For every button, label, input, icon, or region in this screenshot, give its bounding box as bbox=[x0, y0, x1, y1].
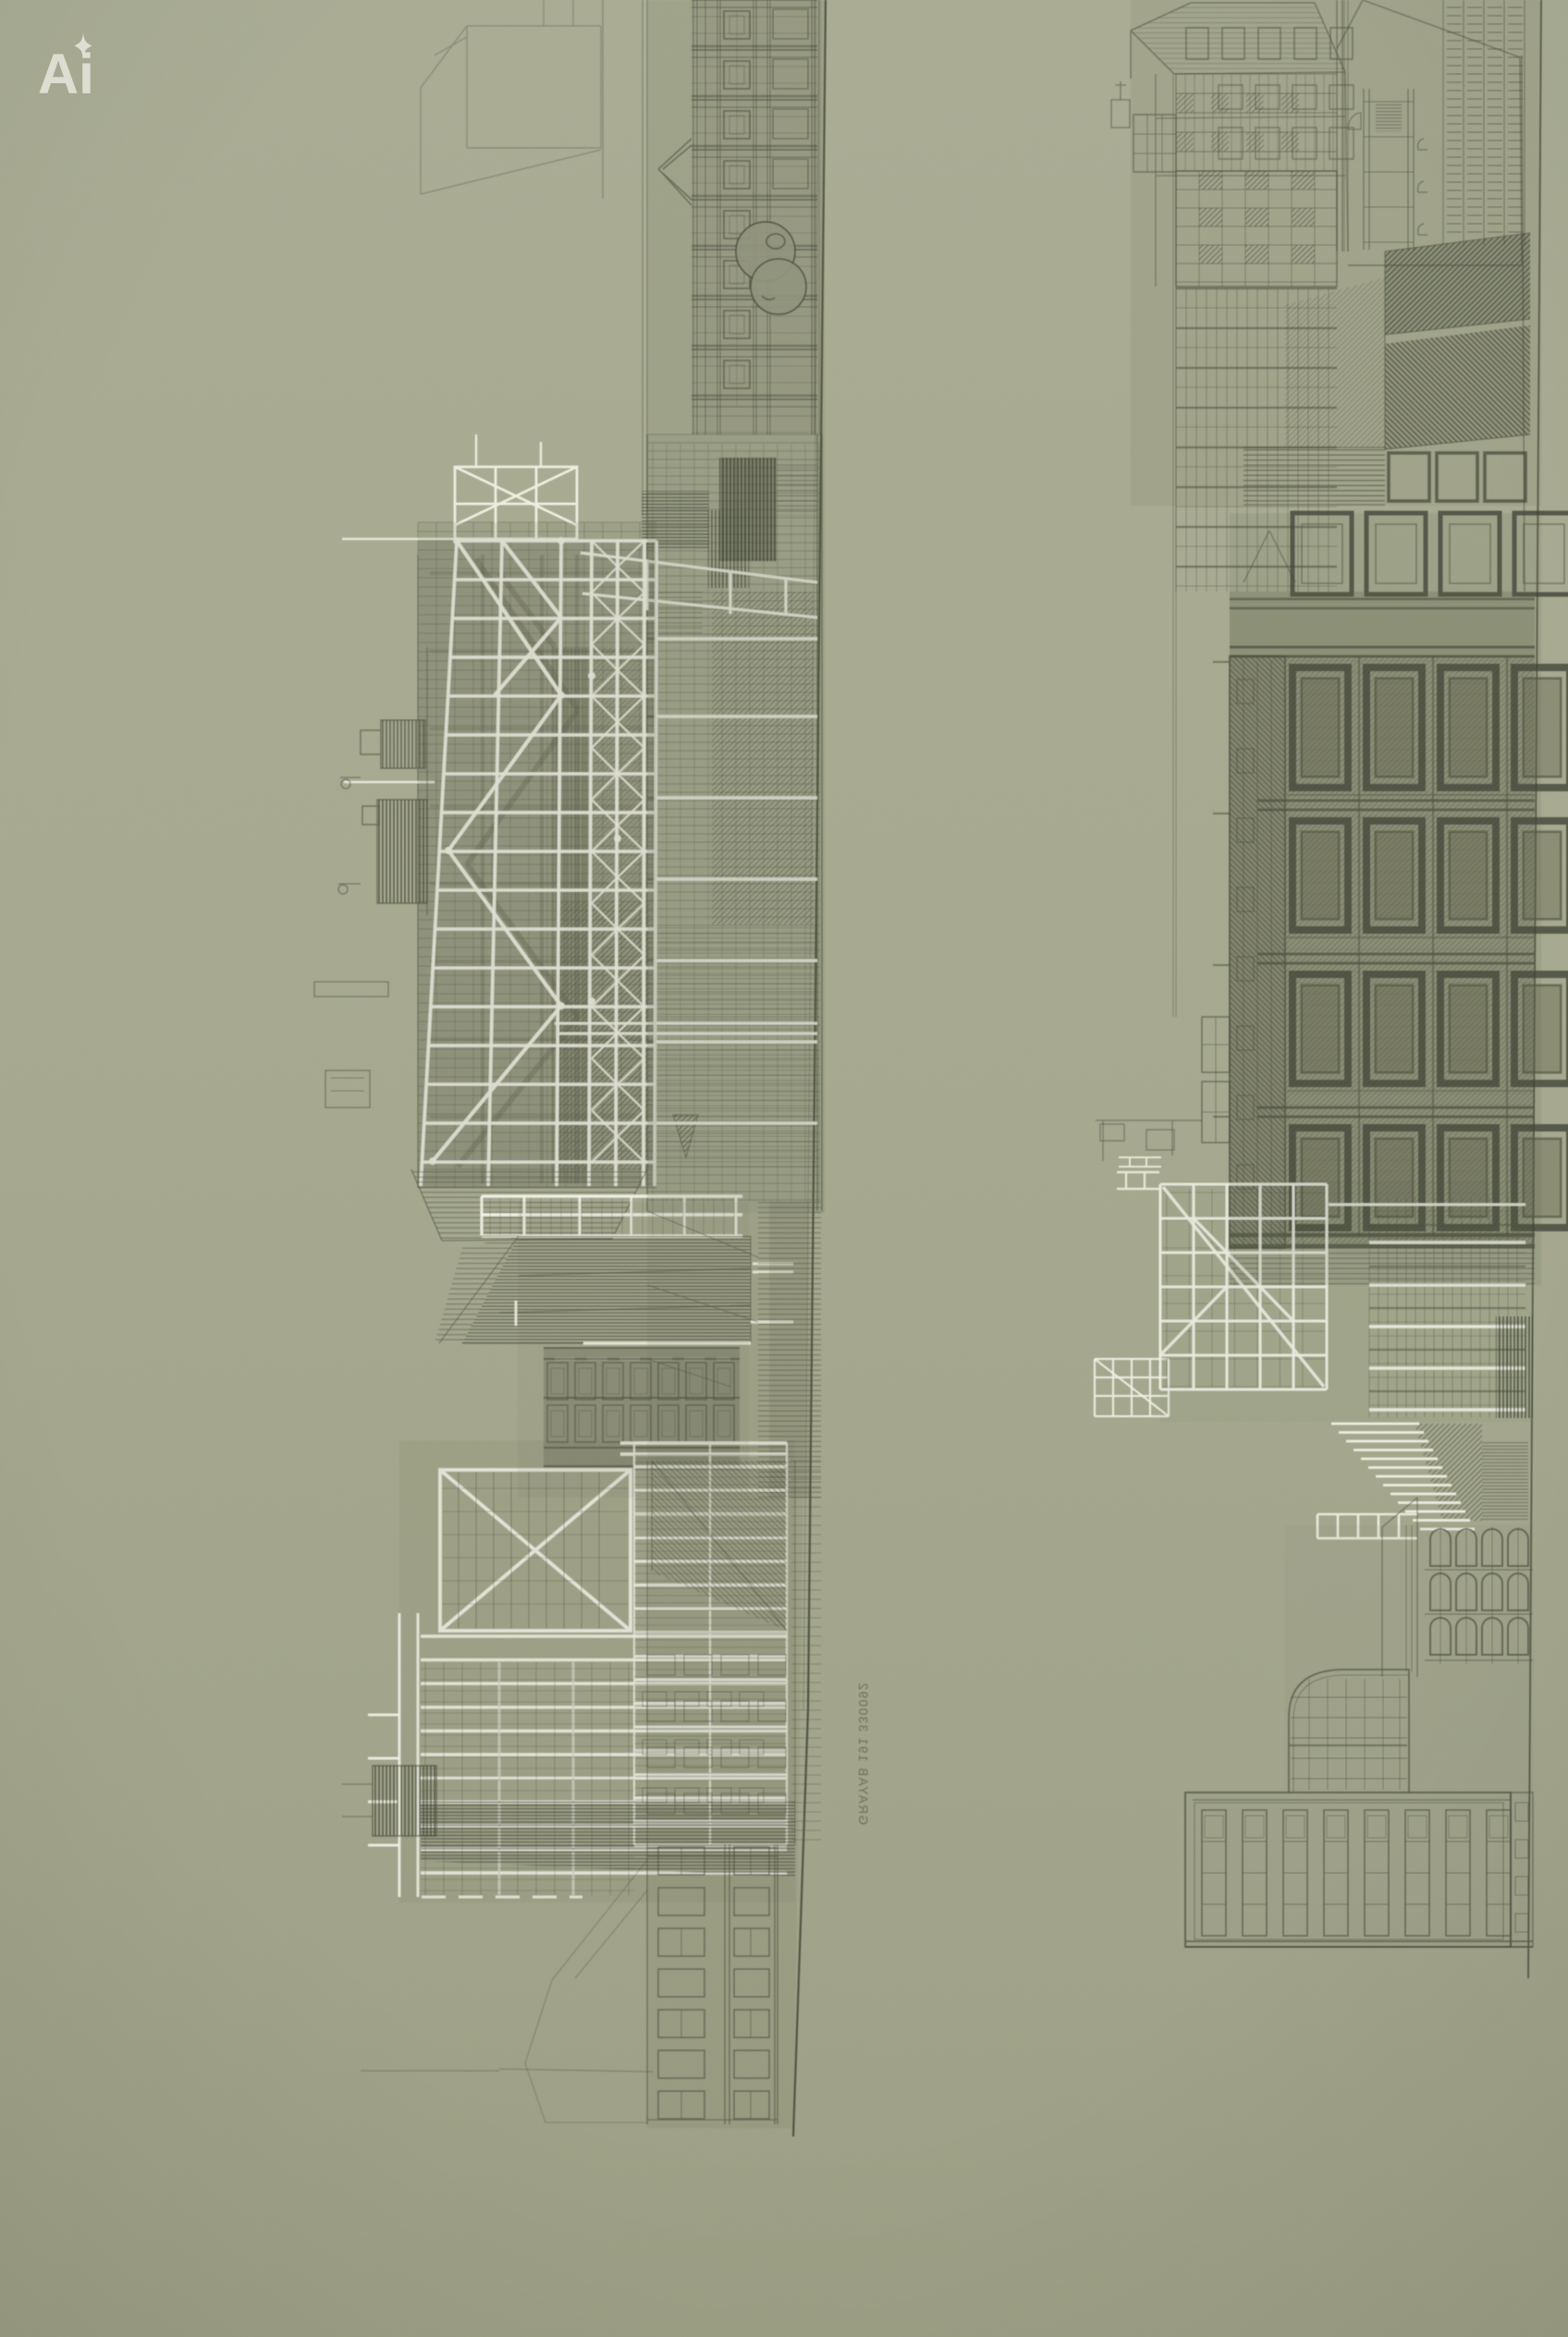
svg-text:Ai: Ai bbox=[38, 43, 94, 105]
